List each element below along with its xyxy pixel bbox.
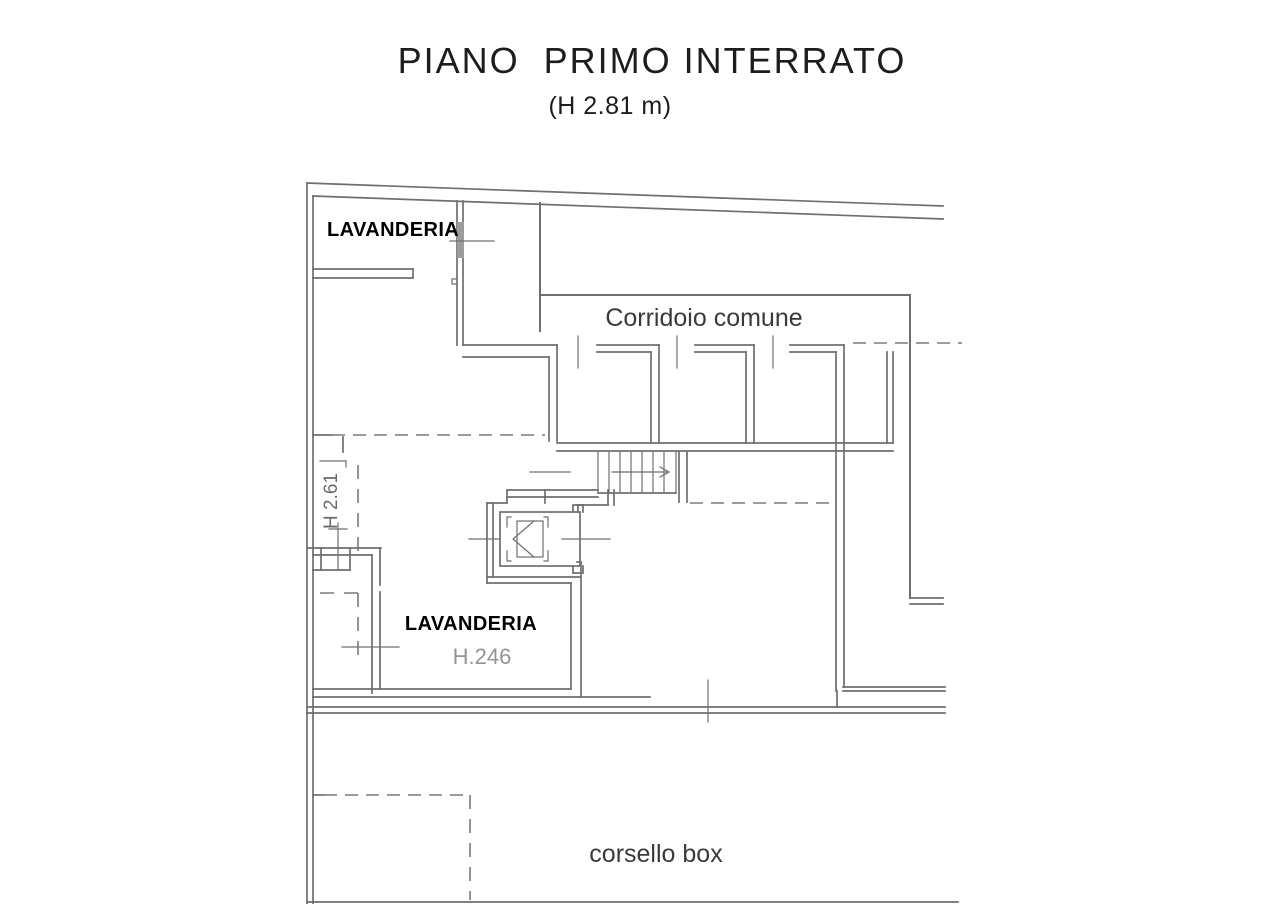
label-laundry-main-height: H.246 [453, 644, 512, 669]
label-laundry-top: LAVANDERIA [327, 219, 459, 241]
upper-middle-room [463, 203, 557, 441]
label-laundry-main: LAVANDERIA [405, 613, 537, 635]
driveway-area [313, 795, 470, 900]
corridor [540, 295, 962, 604]
plan-labels: LAVANDERIA Corridoio comune H 2.61 LAVAN… [321, 219, 803, 868]
staircase [530, 452, 833, 503]
label-corridor: Corridoio comune [605, 304, 802, 332]
elevator [469, 505, 610, 583]
label-driveway: corsello box [589, 840, 723, 868]
floor-plan-page: PIANO PRIMO INTERRATO (H 2.81 m) [0, 0, 1280, 904]
storage-cells [557, 336, 893, 691]
elevator-car [517, 521, 543, 557]
label-height-261: H 2.61 [321, 473, 342, 529]
elevator-lobby-walls [487, 490, 614, 583]
laundry-main-room [313, 562, 945, 722]
outer-walls [307, 183, 958, 904]
floor-plan-svg: LAVANDERIA Corridoio comune H 2.61 LAVAN… [0, 0, 1280, 904]
elevator-chevron [513, 521, 534, 557]
